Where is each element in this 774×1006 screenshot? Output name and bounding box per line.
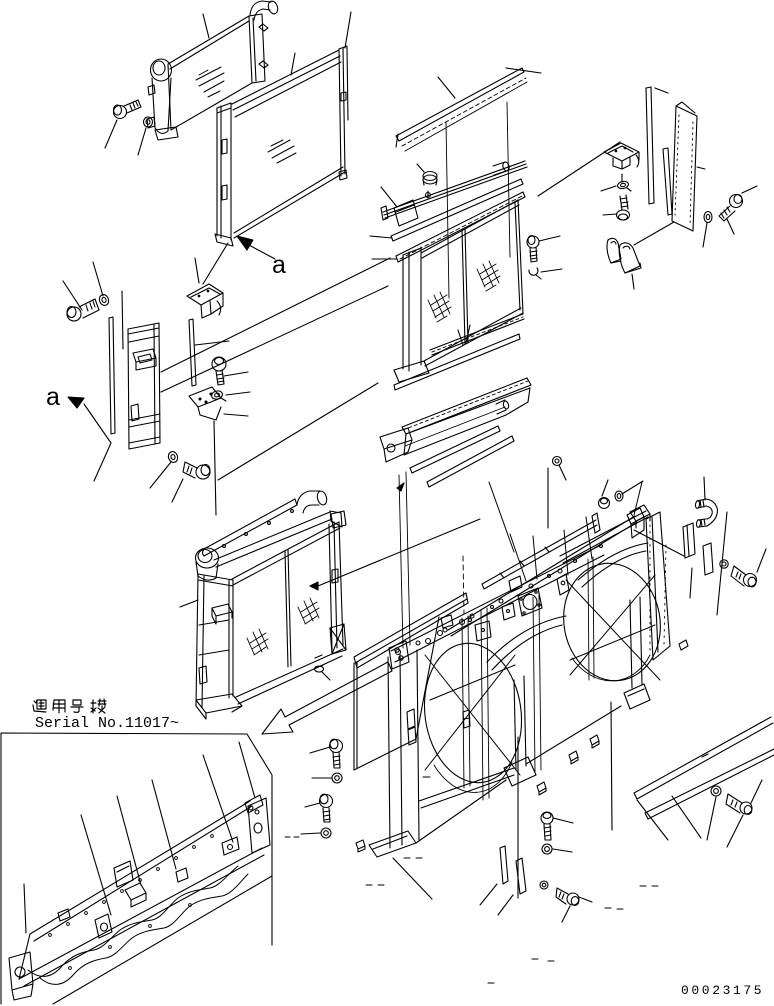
svg-text:Serial No.11017~: Serial No.11017~ — [35, 715, 179, 732]
svg-text:a: a — [46, 383, 60, 411]
svg-text:00023175: 00023175 — [681, 983, 764, 998]
svg-text:a: a — [272, 251, 286, 279]
